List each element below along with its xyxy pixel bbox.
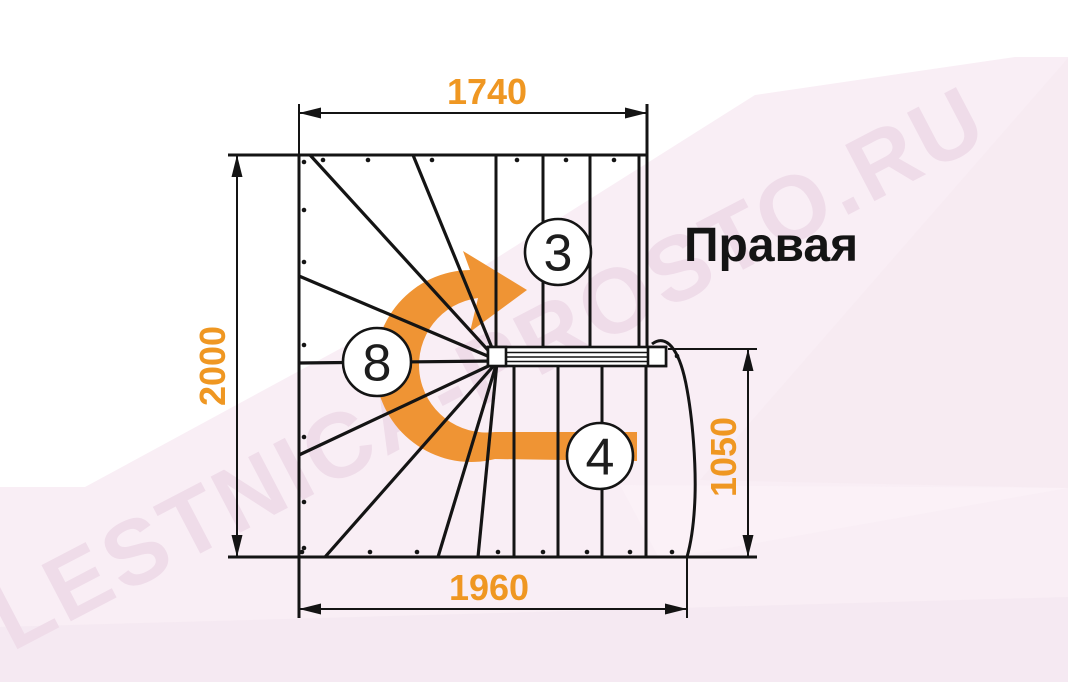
- landing-edge-band: [488, 347, 666, 366]
- newel-post-right: [648, 347, 666, 366]
- upper-flight-count: 3: [544, 225, 573, 283]
- winder-count: 8: [363, 335, 392, 393]
- dim-label-top: 1740: [447, 71, 527, 112]
- newel-post-left: [488, 347, 506, 366]
- dim-arrow-right: [625, 108, 647, 119]
- stair-type-title: Правая: [684, 219, 858, 272]
- lower-flight-count: 4: [586, 429, 615, 487]
- dim-arrow-left: [299, 108, 321, 119]
- dim-label-right: 1050: [703, 417, 744, 497]
- dim-top: 1740: [299, 71, 647, 119]
- dim-label-bottom: 1960: [449, 567, 529, 608]
- dim-label-left: 2000: [192, 326, 233, 406]
- staircase-plan-diagram: LESTNICA-PROSTO.RU: [0, 0, 1068, 682]
- dim-arrow-up: [232, 155, 243, 177]
